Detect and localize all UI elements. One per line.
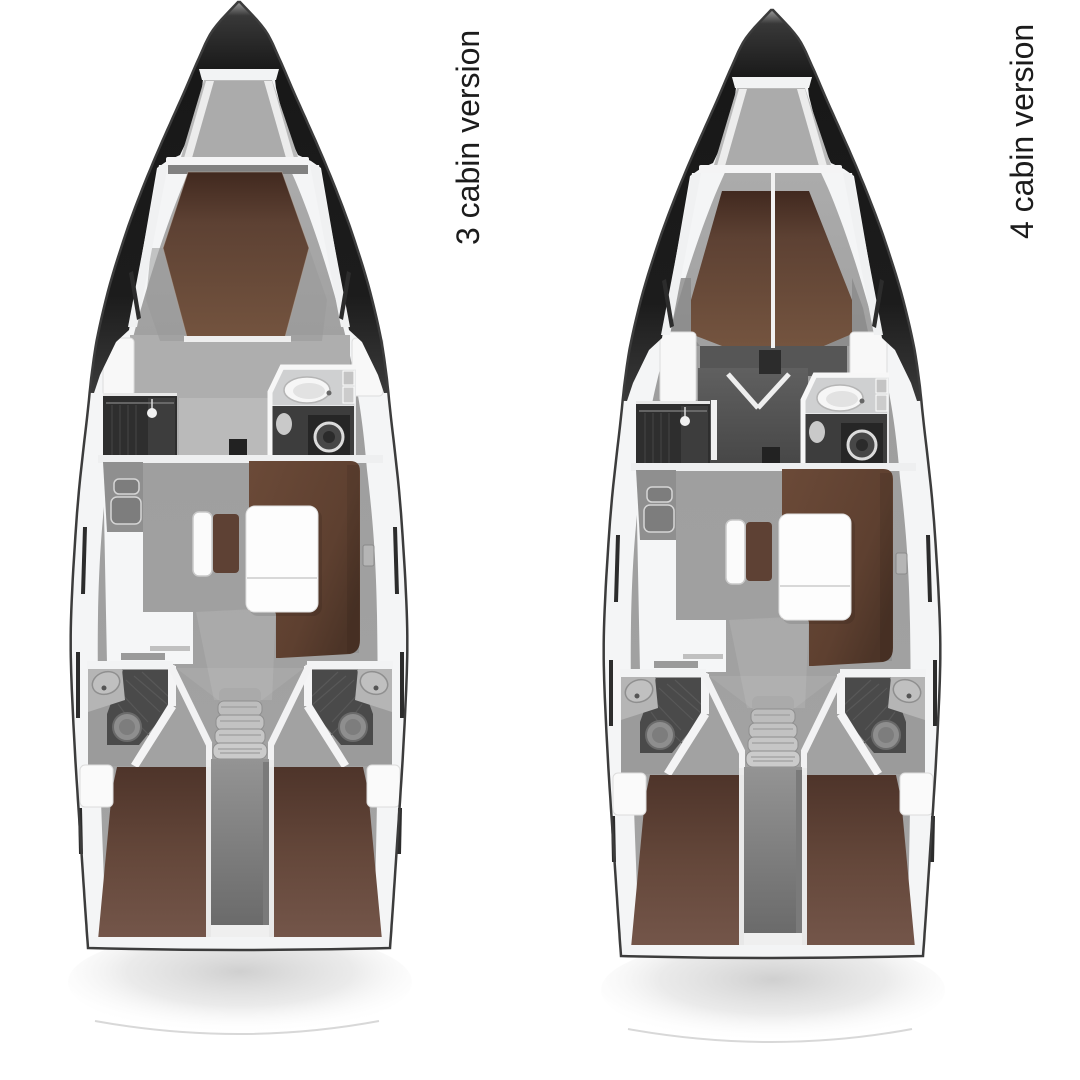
- svg-text:4 cabin version: 4 cabin version: [1004, 24, 1040, 239]
- svg-text:3 cabin version: 3 cabin version: [450, 30, 486, 245]
